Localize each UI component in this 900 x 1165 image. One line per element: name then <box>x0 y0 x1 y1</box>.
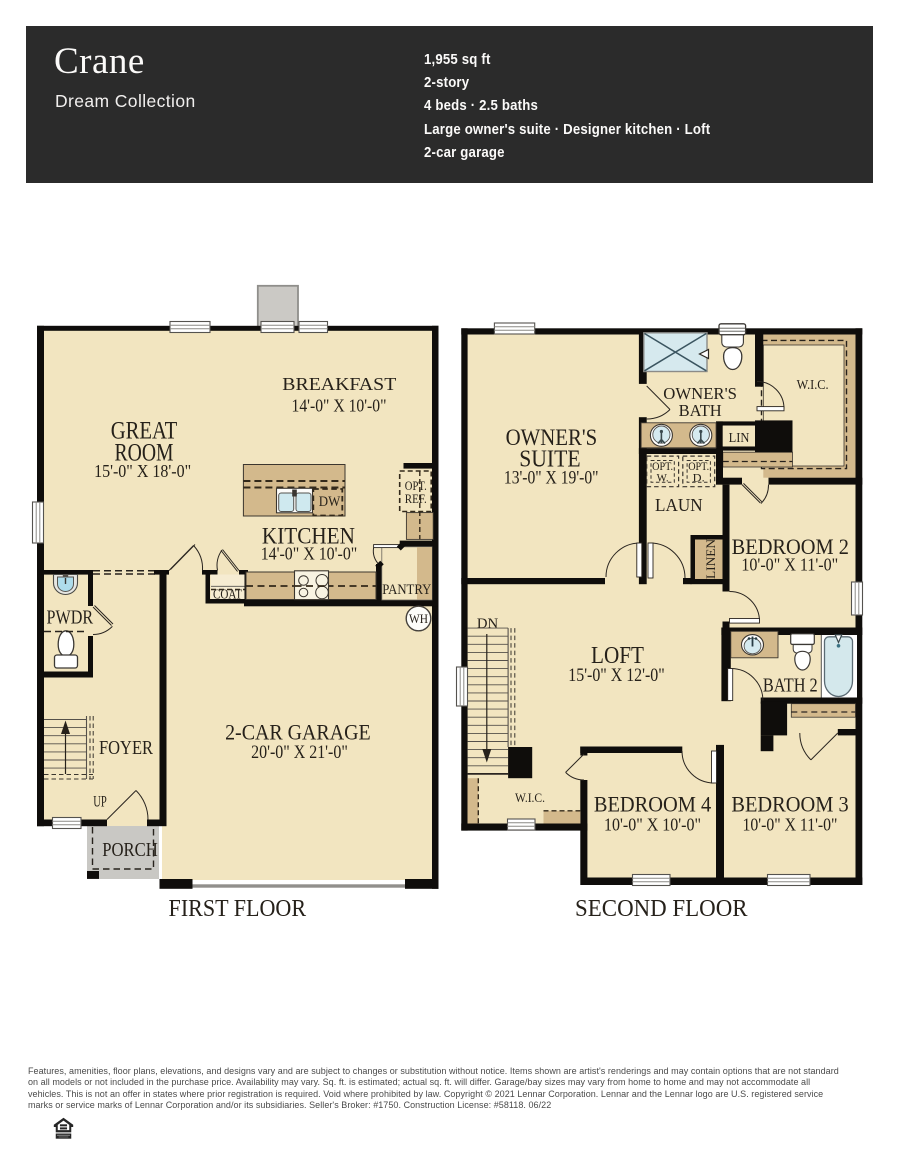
svg-text:13'-0" X 19'-0": 13'-0" X 19'-0" <box>504 469 599 489</box>
svg-text:15'-0" X 18'-0": 15'-0" X 18'-0" <box>94 461 191 481</box>
svg-text:LAUN: LAUN <box>655 495 703 515</box>
svg-text:BEDROOM 4: BEDROOM 4 <box>594 793 711 817</box>
svg-text:OPT.: OPT. <box>688 461 709 473</box>
svg-text:D.: D. <box>693 473 705 485</box>
svg-text:FOYER: FOYER <box>99 737 154 759</box>
svg-text:10'-0" X 11'-0": 10'-0" X 11'-0" <box>741 555 838 575</box>
svg-text:20'-0" X 21'-0": 20'-0" X 21'-0" <box>251 742 348 763</box>
svg-text:SECOND FLOOR: SECOND FLOOR <box>575 895 748 922</box>
svg-text:DN: DN <box>477 616 499 632</box>
svg-text:OPT.: OPT. <box>652 461 673 473</box>
svg-text:10'-0" X 10'-0": 10'-0" X 10'-0" <box>604 815 701 835</box>
svg-text:LIN: LIN <box>729 431 750 446</box>
svg-text:10'-0" X 11'-0": 10'-0" X 11'-0" <box>743 815 838 835</box>
svg-text:2-CAR GARAGE: 2-CAR GARAGE <box>225 719 371 744</box>
svg-text:14'-0" X 10'-0": 14'-0" X 10'-0" <box>261 544 358 564</box>
svg-text:BATH: BATH <box>679 401 722 420</box>
svg-text:BREAKFAST: BREAKFAST <box>282 374 396 394</box>
svg-text:OPT.: OPT. <box>405 479 427 493</box>
svg-text:REF.: REF. <box>405 492 427 506</box>
svg-text:15'-0" X 12'-0": 15'-0" X 12'-0" <box>568 666 664 686</box>
svg-text:FIRST FLOOR: FIRST FLOOR <box>169 895 307 922</box>
svg-text:LINEN: LINEN <box>703 538 718 579</box>
svg-text:DW: DW <box>319 494 341 510</box>
svg-text:PWDR: PWDR <box>47 607 94 629</box>
svg-text:COAT: COAT <box>213 587 243 602</box>
svg-text:UP: UP <box>93 794 107 811</box>
svg-text:14'-0" X 10'-0": 14'-0" X 10'-0" <box>292 396 387 416</box>
svg-text:W.I.C.: W.I.C. <box>515 790 545 805</box>
svg-text:BATH 2: BATH 2 <box>763 675 818 697</box>
svg-text:PANTRY: PANTRY <box>382 582 431 598</box>
svg-text:W.I.C.: W.I.C. <box>797 378 829 393</box>
svg-text:PORCH: PORCH <box>102 839 158 861</box>
svg-text:WH: WH <box>409 611 428 626</box>
svg-text:BEDROOM 3: BEDROOM 3 <box>731 793 848 817</box>
svg-text:W.: W. <box>657 473 669 485</box>
